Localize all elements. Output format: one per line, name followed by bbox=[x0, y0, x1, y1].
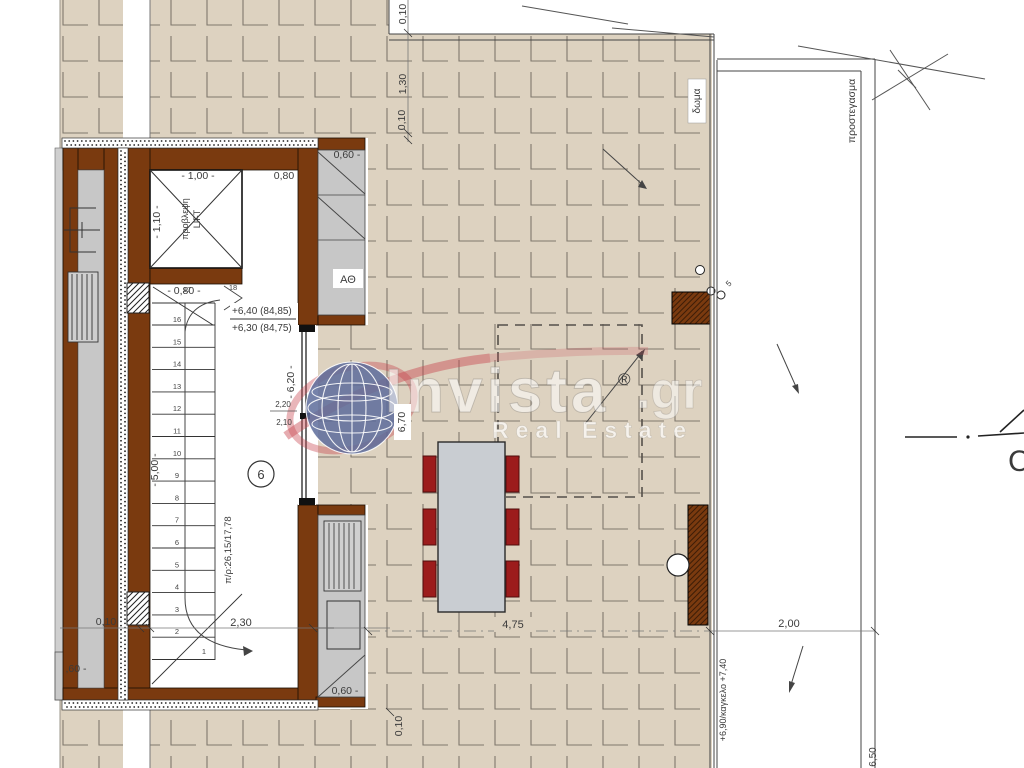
tread-riser-label: π/ρ:26,15/17,78 bbox=[223, 516, 234, 583]
stair-tread-number: 4 bbox=[175, 583, 179, 592]
registered-icon: ® bbox=[618, 370, 631, 389]
stair-tread-number: 3 bbox=[175, 605, 179, 614]
stair-tread-number: 8 bbox=[175, 493, 179, 502]
floor-plan-drawing: προβλεψη LIFT 16151413121110987654321171… bbox=[0, 0, 1024, 768]
dim-label: 6,70 bbox=[396, 412, 408, 433]
roof-label: δωμα bbox=[692, 88, 703, 113]
kitchen-column: 0,60 - bbox=[316, 515, 365, 697]
lift-label: LIFT bbox=[192, 209, 202, 228]
left-ledge bbox=[55, 148, 63, 700]
closet-dim-label: 0,60 - bbox=[334, 149, 361, 161]
dim-label: 2,20 bbox=[275, 400, 291, 409]
dim-label: - 1,10 - bbox=[151, 205, 163, 239]
stair-tread-number: 2 bbox=[175, 627, 179, 636]
vent-circle bbox=[717, 291, 725, 299]
stair-tread-number: 13 bbox=[173, 382, 181, 391]
chair bbox=[506, 509, 519, 545]
joint-strip-bottom bbox=[123, 707, 150, 768]
level-label: +6,40 (84,85) bbox=[232, 306, 292, 317]
dim-label: 0,10 bbox=[96, 616, 117, 628]
dim-label: 0,10 bbox=[396, 110, 408, 131]
hatched-column bbox=[127, 592, 149, 625]
dining-table bbox=[438, 442, 505, 612]
chair bbox=[506, 456, 519, 492]
dim-label: - 0,80 - bbox=[167, 285, 201, 297]
watermark-brand: Invista bbox=[385, 357, 609, 426]
level-label: +6,30 (84,75) bbox=[232, 323, 292, 334]
floor-number: 6 bbox=[257, 467, 264, 482]
stair-tread-number: 16 bbox=[173, 315, 181, 324]
watermark-tagline: Real Estate bbox=[492, 417, 693, 443]
chair bbox=[423, 456, 436, 492]
dim-label: 2,00 bbox=[778, 618, 799, 630]
dim-label: - 6,20 - bbox=[285, 365, 297, 399]
chair bbox=[423, 561, 436, 597]
dim-label: - 5,00 - bbox=[149, 453, 161, 487]
stair-tread-number: 5 bbox=[175, 560, 179, 569]
outside-right-area bbox=[712, 0, 1024, 768]
vent-circle bbox=[696, 266, 705, 275]
stair-tread-number: 11 bbox=[173, 427, 181, 436]
closet-label: ΑΘ bbox=[340, 274, 356, 286]
joint-strip-top bbox=[123, 0, 150, 138]
dim-label: 2,10 bbox=[276, 418, 292, 427]
left-room bbox=[78, 170, 104, 688]
kitchen-dim-label: 0,60 - bbox=[332, 685, 359, 697]
stair-tread-number: 15 bbox=[173, 337, 181, 346]
lift-shaft: προβλεψη LIFT bbox=[150, 170, 242, 268]
chair bbox=[506, 561, 519, 597]
stair-tread-number: 10 bbox=[173, 449, 181, 458]
dim-label: 2,30 bbox=[230, 617, 251, 629]
dim-label: ,60 - bbox=[65, 663, 87, 675]
hatched-column bbox=[127, 283, 149, 313]
stair-tread-number: 14 bbox=[173, 360, 181, 369]
chair bbox=[423, 509, 436, 545]
canopy-label: προστεγασμα bbox=[846, 79, 858, 143]
dining-set bbox=[423, 442, 519, 612]
stair-tread-number: 18 bbox=[229, 283, 237, 292]
railing-level-label: +6,90/καγκελο +7,40 bbox=[718, 659, 728, 742]
stair-tread-number: 1 bbox=[202, 647, 206, 656]
grille-symbol bbox=[68, 272, 98, 342]
closet-column: ΑΘ 0,60 - bbox=[318, 149, 365, 315]
outside-top-area bbox=[389, 0, 714, 34]
floor-plan-canvas: προβλεψη LIFT 16151413121110987654321171… bbox=[0, 0, 1024, 768]
watermark-tld: .gr bbox=[636, 362, 702, 420]
dim-label: 6,50 bbox=[868, 747, 879, 767]
stair-tread-number: 7 bbox=[175, 516, 179, 525]
stair-tread-number: 6 bbox=[175, 538, 179, 547]
dim-label: 4,75 bbox=[502, 619, 523, 631]
column-circle bbox=[667, 554, 689, 576]
dim-label: 0,80 bbox=[274, 170, 295, 182]
dim-label: 0,10 bbox=[397, 4, 409, 25]
stair-tread-number: 12 bbox=[173, 404, 181, 413]
dim-label: 0,10 bbox=[393, 716, 405, 737]
section-letter: C bbox=[1008, 445, 1024, 478]
stair-tread-number: 9 bbox=[175, 471, 179, 480]
dim-label: - 1,00 - bbox=[181, 170, 215, 182]
lift-label: προβλεψη bbox=[180, 198, 190, 239]
dim-label: 1,30 bbox=[397, 74, 409, 95]
